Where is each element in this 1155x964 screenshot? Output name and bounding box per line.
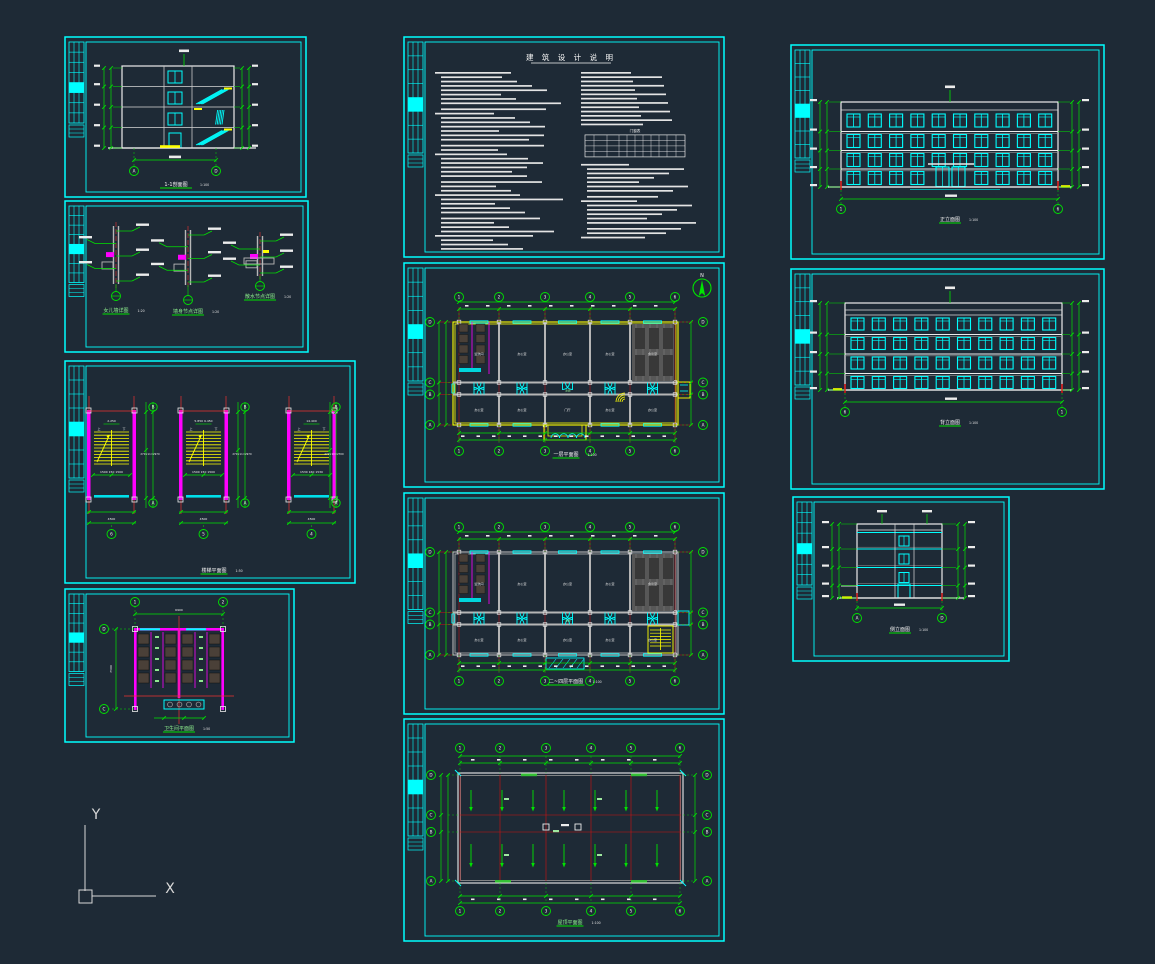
svg-text:B: B (429, 392, 432, 397)
svg-text:门窗表: 门窗表 (630, 128, 641, 133)
svg-text:1:100: 1:100 (592, 921, 601, 925)
svg-text:C: C (103, 707, 106, 712)
svg-text:D: D (428, 320, 431, 325)
svg-text:A: A (133, 169, 136, 174)
svg-text:A: A (429, 653, 432, 658)
sheet-caption: 散水节点详图 (245, 293, 275, 300)
sheet-caption: 正立面图 (940, 216, 960, 223)
svg-text:1: 1 (134, 600, 137, 605)
svg-text:C: C (429, 610, 432, 615)
svg-text:270×11=2970: 270×11=2970 (140, 452, 160, 456)
svg-text:A: A (335, 501, 338, 506)
svg-text:N: N (700, 273, 704, 279)
svg-text:门厅: 门厅 (564, 407, 570, 412)
svg-text:走廊: 走廊 (565, 619, 571, 623)
svg-text:办公室: 办公室 (605, 581, 614, 586)
svg-text:4: 4 (589, 295, 592, 300)
svg-text:办公室: 办公室 (648, 407, 657, 412)
svg-text:6: 6 (1057, 207, 1060, 212)
sheet-roof-plan[interactable]: 112233445566DCBADCBA屋顶平面图1:100 (403, 718, 725, 942)
svg-text:5: 5 (629, 525, 632, 530)
svg-text:B: B (152, 405, 155, 410)
svg-text:1:100: 1:100 (919, 628, 928, 632)
sheet-side-elevation[interactable]: AD侧立面图1:100 (792, 496, 1010, 662)
svg-text:办公室: 办公室 (605, 407, 614, 412)
svg-text:1: 1 (458, 295, 461, 300)
svg-text:1:100: 1:100 (593, 680, 602, 684)
sheet-rear-elevation[interactable]: 61背立面图1:100 (790, 268, 1105, 490)
svg-text:2: 2 (499, 746, 502, 751)
svg-text:走廊: 走廊 (565, 389, 571, 393)
svg-text:会议室: 会议室 (648, 351, 657, 356)
svg-text:1500 150 1500: 1500 150 1500 (192, 470, 215, 474)
svg-text:1: 1 (458, 449, 461, 454)
svg-text:1:100: 1:100 (969, 218, 978, 222)
svg-text:6900: 6900 (175, 608, 183, 612)
svg-text:办公室: 办公室 (563, 581, 572, 586)
svg-text:D: D (428, 550, 431, 555)
cad-canvas[interactable]: Y X AD1-1剖面图1:100女儿墙详图1:20墙身节点详图1:20散水节点… (0, 0, 1155, 964)
svg-text:5: 5 (629, 295, 632, 300)
sheet-caption: 1-1剖面图 (164, 181, 187, 188)
svg-text:5: 5 (629, 679, 632, 684)
svg-text:6: 6 (674, 679, 677, 684)
svg-text:1:50: 1:50 (236, 569, 243, 573)
svg-text:办公室: 办公室 (648, 637, 657, 642)
svg-text:6: 6 (844, 410, 847, 415)
svg-text:4500: 4500 (308, 517, 316, 521)
sheet-front-elevation[interactable]: 16正立面图1:100 (790, 44, 1105, 260)
sheet-caption: 二~四层平面图 (549, 679, 583, 685)
svg-text:下: 下 (214, 427, 217, 431)
sheet-design-notes[interactable]: 建 筑 设 计 说 明门窗表 (403, 36, 725, 258)
sheet-caption: 楼梯平面图 (201, 567, 226, 574)
ucs-y-label: Y (91, 807, 101, 823)
svg-text:B: B (706, 830, 709, 835)
svg-text:A: A (244, 501, 247, 506)
svg-text:A: A (429, 423, 432, 428)
svg-text:B: B (430, 830, 433, 835)
svg-text:6: 6 (679, 746, 682, 751)
svg-text:办公室: 办公室 (474, 407, 483, 412)
svg-text:5: 5 (629, 449, 632, 454)
svg-text:下: 下 (122, 427, 125, 431)
sheet-upper-floor-plan[interactable]: 盥洗间办公室办公室办公室会议室办公室办公室办公室办公室办公室走廊12345612… (403, 492, 725, 715)
svg-text:4: 4 (310, 532, 313, 537)
svg-text:2: 2 (222, 600, 225, 605)
svg-text:B: B (702, 622, 705, 627)
svg-text:D: D (429, 773, 432, 778)
svg-text:1:20: 1:20 (138, 309, 145, 313)
svg-text:1500 150 1500: 1500 150 1500 (100, 470, 123, 474)
svg-text:2.250: 2.250 (107, 419, 116, 423)
sheet-design-notes-content: 建 筑 设 计 说 明门窗表 (435, 52, 696, 250)
notes-title: 建 筑 设 计 说 明 (526, 52, 616, 62)
svg-text:270×10=2700: 270×10=2700 (324, 452, 344, 456)
sheet-caption: 侧立面图 (890, 626, 910, 633)
svg-text:办公室: 办公室 (605, 351, 614, 356)
svg-text:D: D (940, 616, 943, 621)
svg-text:A: A (702, 653, 705, 658)
svg-text:5.850 9.450: 5.850 9.450 (194, 419, 212, 423)
sheet-toilet-plan[interactable]: 6900127500DC卫生间平面图1:50 (64, 588, 295, 743)
ucs-icon-graphic: Y X (70, 793, 190, 913)
svg-text:1: 1 (459, 909, 462, 914)
svg-text:盥洗间: 盥洗间 (474, 351, 483, 356)
north-arrow: N (693, 273, 711, 297)
svg-text:2: 2 (498, 679, 501, 684)
sheet-upper-floor-plan-content: 盥洗间办公室办公室办公室会议室办公室办公室办公室办公室办公室走廊12345612… (426, 523, 708, 686)
svg-text:D: D (705, 773, 708, 778)
svg-text:5: 5 (630, 909, 633, 914)
ucs-x-label: X (165, 881, 175, 897)
svg-text:6: 6 (674, 449, 677, 454)
sheet-toilet-plan-content: 6900127500DC卫生间平面图1:50 (100, 598, 235, 733)
svg-text:6: 6 (679, 909, 682, 914)
svg-text:3: 3 (544, 679, 547, 684)
svg-text:4: 4 (589, 525, 592, 530)
svg-text:1: 1 (458, 679, 461, 684)
svg-text:A: A (702, 423, 705, 428)
svg-text:B: B (702, 392, 705, 397)
svg-text:5: 5 (630, 746, 633, 751)
svg-text:办公室: 办公室 (563, 637, 572, 642)
svg-text:办公室: 办公室 (517, 581, 526, 586)
svg-text:下: 下 (322, 427, 325, 431)
svg-text:1:20: 1:20 (212, 310, 219, 314)
svg-text:盥洗间: 盥洗间 (474, 581, 483, 586)
svg-text:A: A (706, 879, 709, 884)
svg-text:2: 2 (498, 295, 501, 300)
svg-text:1: 1 (840, 207, 843, 212)
sheet-wall-details-content: 女儿墙详图1:20墙身节点详图1:20散水节点详图1:20 (79, 222, 293, 315)
svg-text:C: C (702, 610, 705, 615)
svg-text:4: 4 (589, 679, 592, 684)
svg-text:3: 3 (544, 295, 547, 300)
svg-text:B: B (335, 405, 338, 410)
svg-text:1:100: 1:100 (588, 453, 597, 457)
svg-text:14.400: 14.400 (306, 419, 317, 423)
svg-text:D: D (701, 550, 704, 555)
svg-text:上: 上 (97, 426, 100, 431)
sheet-first-floor-plan-content: 盥洗间办公室办公室办公室会议室办公室办公室门厅办公室办公室走廊123456123… (426, 273, 712, 458)
svg-text:办公室: 办公室 (517, 637, 526, 642)
sheet-first-floor-plan[interactable]: 盥洗间办公室办公室办公室会议室办公室办公室门厅办公室办公室走廊123456123… (403, 262, 725, 488)
svg-text:3: 3 (545, 909, 548, 914)
svg-text:1: 1 (458, 525, 461, 530)
svg-text:1:20: 1:20 (284, 295, 291, 299)
svg-text:上: 上 (297, 426, 300, 431)
svg-text:2: 2 (498, 525, 501, 530)
svg-text:6: 6 (110, 532, 113, 537)
sheet-building-section-content: AD1-1剖面图1:100 (94, 50, 258, 189)
svg-text:1: 1 (1061, 410, 1064, 415)
svg-text:4: 4 (590, 909, 593, 914)
svg-text:C: C (702, 380, 705, 385)
svg-text:B: B (244, 405, 247, 410)
svg-text:4: 4 (590, 746, 593, 751)
svg-text:上: 上 (189, 426, 192, 431)
svg-text:办公室: 办公室 (605, 637, 614, 642)
svg-text:办公室: 办公室 (517, 351, 526, 356)
sheet-caption: 墙身节点详图 (173, 308, 203, 315)
svg-text:D: D (102, 627, 105, 632)
svg-text:270×11=2970: 270×11=2970 (232, 452, 252, 456)
svg-text:A: A (856, 616, 859, 621)
svg-text:A: A (152, 501, 155, 506)
sheet-caption: 一层平面图 (553, 452, 578, 458)
svg-text:A: A (430, 879, 433, 884)
svg-text:1: 1 (459, 746, 462, 751)
svg-text:4500: 4500 (108, 517, 116, 521)
svg-text:B: B (429, 622, 432, 627)
sheet-caption: 卫生间平面图 (164, 725, 194, 732)
svg-text:1:50: 1:50 (203, 727, 210, 731)
svg-text:3: 3 (545, 746, 548, 751)
svg-text:C: C (706, 813, 709, 818)
svg-text:办公室: 办公室 (474, 637, 483, 642)
svg-text:2: 2 (499, 909, 502, 914)
svg-text:D: D (214, 169, 217, 174)
ucs-icon: Y X (70, 793, 190, 917)
svg-text:7500: 7500 (109, 665, 113, 673)
sheet-caption: 女儿墙详图 (103, 307, 128, 314)
sheet-caption: 屋顶平面图 (557, 920, 582, 926)
sheet-building-section[interactable]: AD1-1剖面图1:100 (64, 36, 307, 198)
svg-text:1530 160 1530: 1530 160 1530 (300, 470, 323, 474)
svg-text:3: 3 (544, 525, 547, 530)
svg-text:会议室: 会议室 (648, 581, 657, 586)
svg-text:D: D (701, 320, 704, 325)
svg-text:1:100: 1:100 (200, 183, 209, 187)
svg-text:5: 5 (202, 532, 205, 537)
svg-text:6: 6 (674, 295, 677, 300)
svg-text:1:100: 1:100 (969, 421, 978, 425)
svg-text:3: 3 (544, 449, 547, 454)
sheet-caption: 背立面图 (940, 419, 960, 426)
sheet-side-elevation-content: AD侧立面图1:100 (822, 510, 975, 633)
sheet-front-elevation-content: 16正立面图1:100 (810, 86, 1089, 224)
sheet-stair-plans[interactable]: 2.250上下1500 150 15004500270×11=2970BA65.… (64, 360, 356, 584)
svg-text:C: C (429, 380, 432, 385)
svg-text:2: 2 (498, 449, 501, 454)
svg-text:办公室: 办公室 (563, 351, 572, 356)
svg-text:C: C (430, 813, 433, 818)
svg-text:办公室: 办公室 (517, 407, 526, 412)
svg-text:4500: 4500 (200, 517, 208, 521)
sheet-roof-plan-content: 112233445566DCBADCBA屋顶平面图1:100 (427, 744, 712, 927)
sheet-stair-plans-content: 2.250上下1500 150 15004500270×11=2970BA65.… (86, 396, 344, 574)
sheet-rear-elevation-content: 61背立面图1:100 (810, 287, 1089, 427)
sheet-wall-details[interactable]: 女儿墙详图1:20墙身节点详图1:20散水节点详图1:20 (64, 200, 309, 353)
svg-text:6: 6 (674, 525, 677, 530)
